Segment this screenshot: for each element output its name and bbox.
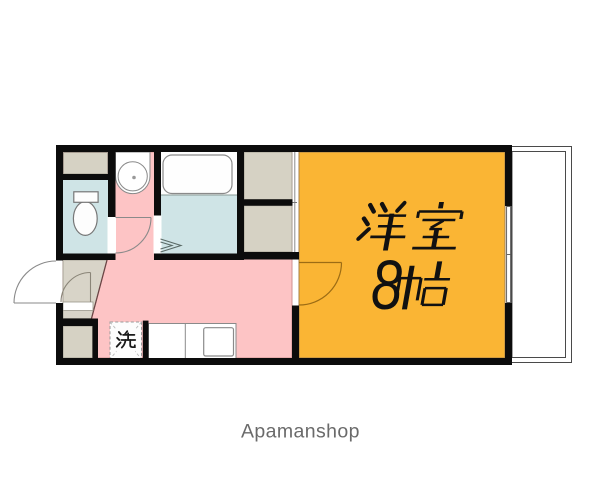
svg-text:Apamanshop: Apamanshop: [241, 421, 360, 443]
